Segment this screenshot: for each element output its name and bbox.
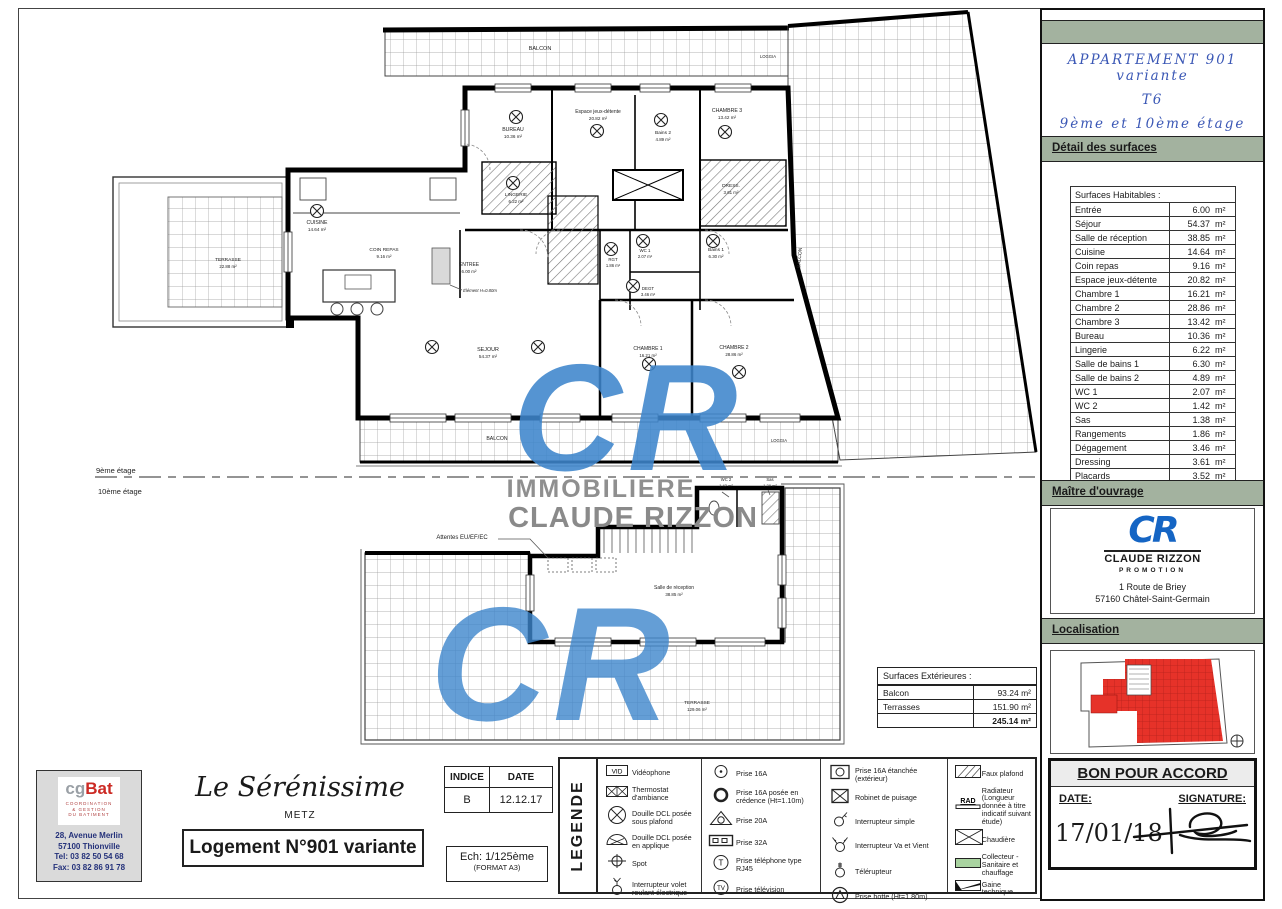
svg-text:Bains 2: Bains 2 <box>655 130 671 136</box>
outlet16-counter-icon <box>708 787 734 808</box>
balcon-top-label: BALCON <box>529 46 552 52</box>
terrace-9th <box>113 177 294 328</box>
svg-text:ENTREE: ENTREE <box>459 262 480 268</box>
gbat-box: cgBat COORDINATION& GESTIONDU BATIMENT 2… <box>36 770 142 882</box>
svg-text:T: T <box>719 859 724 868</box>
svg-text:LINGERIE: LINGERIE <box>505 192 527 198</box>
outlet20-icon <box>708 810 734 831</box>
shutter-switch-icon <box>604 877 630 901</box>
detail-surfaces-heading: Détail des surfaces <box>1042 137 1263 154</box>
loggia-top-label: LOGGIA <box>760 54 776 59</box>
svg-text:CUISINE: CUISINE <box>306 220 328 226</box>
svg-text:2.07 m²: 2.07 m² <box>638 254 653 259</box>
table-row: Dégagement3.46m² <box>1071 441 1236 455</box>
svg-text:RGT: RGT <box>608 257 618 262</box>
legend-item: Télérupteur <box>827 860 945 883</box>
spot-icon <box>604 853 630 874</box>
legend-item: Prise 16A étanchée (extérieur) <box>827 764 945 785</box>
legend-item: Interrupteur Va et Vient <box>827 835 945 858</box>
hab-table-header: Surfaces Habitables : <box>1071 187 1236 203</box>
balcon-bottom-label: BALCON <box>486 436 508 442</box>
svg-text:3.46 m²: 3.46 m² <box>641 292 656 297</box>
table-row: Rangements1.86m² <box>1071 427 1236 441</box>
bon-pour-accord-box: BON POUR ACCORD DATE: SIGNATURE: 17/01/1… <box>1048 758 1257 870</box>
legend-item: Prise 20A <box>708 810 818 831</box>
legend-item: T Prise téléphone type RJ45 <box>708 854 818 876</box>
legend: LEGENDE VID Vidéophone Thermostat d'ambi… <box>558 757 1037 894</box>
maitre-ouvrage-box: CR CLAUDE RIZZON PROMOTION 1 Route de Br… <box>1050 508 1255 614</box>
watermark-cr-bottom: CR <box>430 574 676 755</box>
svg-text:10.36 m²: 10.36 m² <box>504 134 523 139</box>
svg-text:DEGT: DEGT <box>642 286 655 291</box>
legend-item: Interrupteur volet roulant électrique <box>604 877 699 901</box>
table-row: WC 12.07m² <box>1071 385 1236 399</box>
logement-box: Logement N°901 variante <box>182 829 424 867</box>
table-row: Dressing3.61m² <box>1071 455 1236 469</box>
top-band <box>1042 20 1263 44</box>
svg-text:13.42 m²: 13.42 m² <box>718 115 737 120</box>
svg-text:WC 1: WC 1 <box>640 248 652 253</box>
table-row: Terrasses151.90 m² <box>878 700 1036 714</box>
table-row: Lingerie6.22m² <box>1071 343 1236 357</box>
floor10-label: 10ème étage <box>98 487 142 496</box>
date-label: DATE: <box>1059 793 1092 805</box>
table-row: WC 21.42m² <box>1071 399 1236 413</box>
collector-icon <box>954 856 980 874</box>
videophone-icon: VID <box>604 764 630 782</box>
legend-item: Prise 32A <box>708 834 818 852</box>
legend-item: VID Vidéophone <box>604 764 699 782</box>
project-name: Le Sérénissime <box>175 772 425 803</box>
project-city: METZ <box>175 810 425 821</box>
phone-outlet-icon: T <box>708 854 734 876</box>
legend-item: TV Prise télévision <box>708 879 818 901</box>
legend-item: Douille DCL posée en applique <box>604 833 699 851</box>
legend-item: Chaudière <box>954 828 1033 851</box>
switch-two-way-icon <box>827 835 853 858</box>
ext-total-row: 245.14 m² <box>878 714 1036 728</box>
table-row: Salle de bains 16.30m² <box>1071 357 1236 371</box>
svg-text:TERRASSE: TERRASSE <box>684 700 710 706</box>
svg-text:1.86 m²: 1.86 m² <box>606 263 621 268</box>
gbat-logo: cgBat COORDINATION& GESTIONDU BATIMENT <box>58 777 120 825</box>
switch-simple-icon <box>827 811 853 832</box>
localisation-band: Localisation <box>1042 618 1263 644</box>
localisation-map <box>1050 650 1255 754</box>
outlet16-icon <box>708 764 734 784</box>
svg-text:54.37 m²: 54.37 m² <box>479 354 498 359</box>
gaine-technique-box <box>613 170 683 200</box>
bon-pour-accord-heading: BON POUR ACCORD <box>1051 761 1254 787</box>
company-address: 1 Route de Briey 57160 Châtel-Saint-Germ… <box>1051 581 1254 605</box>
svg-text:4.89 m²: 4.89 m² <box>656 137 671 142</box>
outlet32-icon <box>708 834 734 852</box>
exterior-surfaces-table: Surfaces Extérieures : Balcon93.24 m² Te… <box>877 667 1037 728</box>
legend-item: Prise 16A <box>708 764 818 784</box>
scale-box: Ech: 1/125ème (FORMAT A3) <box>446 846 548 882</box>
maitre-ouvrage-heading: Maître d'ouvrage <box>1042 481 1263 498</box>
company-name: CLAUDE RIZZON <box>1104 550 1200 565</box>
outlet16-waterproof-icon <box>827 764 853 785</box>
legend-item: Douille DCL posée sous plafond <box>604 805 699 830</box>
thermostat-icon <box>604 785 630 803</box>
watermark-line1: IMMOBILIERE <box>507 475 696 503</box>
false-ceiling-icon <box>954 764 980 784</box>
svg-text:Sas: Sas <box>766 477 773 482</box>
watermark-line2: CLAUDE RIZZON <box>508 502 758 534</box>
boiler-icon <box>954 828 980 851</box>
hood-outlet-icon <box>827 886 853 909</box>
svg-text:SEJOUR: SEJOUR <box>477 347 499 353</box>
technical-duct-icon <box>954 879 980 897</box>
element-label: Élément H=0.80m <box>463 288 497 293</box>
table-row: Coin repas9.16m² <box>1071 259 1236 273</box>
legend-item: Faux plafond <box>954 764 1033 784</box>
svg-text:Bains 1: Bains 1 <box>708 247 724 253</box>
table-row: Salle de réception38.85m² <box>1071 231 1236 245</box>
loggia-bottom-label: LOGGIA <box>771 438 787 443</box>
svg-text:VID: VID <box>612 769 623 776</box>
legend-item: RAD Radiateur (Longueur donnée à titre i… <box>954 787 1033 826</box>
signature <box>1132 805 1252 860</box>
svg-text:129.06 m²: 129.06 m² <box>687 707 707 712</box>
table-row: Séjour54.37m² <box>1071 217 1236 231</box>
svg-text:20.82 m²: 20.82 m² <box>589 116 608 121</box>
legend-item: Thermostat d'ambiance <box>604 785 699 803</box>
indice-table: INDICEDATE B12.12.17 <box>444 766 553 813</box>
table-row: Chambre 116.21m² <box>1071 287 1236 301</box>
dcl-ceiling-icon <box>604 805 630 830</box>
habitable-surfaces-table: Surfaces Habitables : Entrée6.00m² Séjou… <box>1070 186 1236 497</box>
signature-label: SIGNATURE: <box>1178 793 1246 805</box>
svg-text:6.30 m²: 6.30 m² <box>709 254 724 259</box>
gbat-address: 28, Avenue Merlin 57100 Thionville Tel: … <box>37 831 141 873</box>
legend-item: Robinet de puisage <box>827 788 945 809</box>
svg-text:1.38 m²: 1.38 m² <box>763 483 777 488</box>
table-row: Chambre 228.86m² <box>1071 301 1236 315</box>
svg-text:RAD: RAD <box>960 798 975 805</box>
legend-title: LEGENDE <box>560 759 598 892</box>
floor9-label: 9ème étage <box>96 466 136 475</box>
svg-text:14.64 m²: 14.64 m² <box>308 227 327 232</box>
legend-item: Collecteur - Sanitaire et chauffage <box>954 853 1033 876</box>
localisation-map-drawing <box>1051 651 1252 751</box>
legend-item: Prise 16A posée en crédence (Ht=1.10m) <box>708 787 818 808</box>
tv-outlet-icon: TV <box>708 879 734 901</box>
localisation-heading: Localisation <box>1042 619 1263 636</box>
legend-item: Interrupteur simple <box>827 811 945 832</box>
balcony-top <box>383 28 789 76</box>
table-row: Bureau10.36m² <box>1071 329 1236 343</box>
svg-text:3.61 m²: 3.61 m² <box>724 190 739 195</box>
water-tap-icon <box>827 788 853 809</box>
legend-item: Spot <box>604 853 699 874</box>
table-row: Sas1.38m² <box>1071 413 1236 427</box>
svg-text:Espace jeux-détente: Espace jeux-détente <box>575 109 621 115</box>
legend-item: Prise hotte (Ht=1.80m) <box>827 886 945 909</box>
detail-surfaces-band: Détail des surfaces <box>1042 136 1263 162</box>
cr-logo: CR <box>1051 513 1254 549</box>
radiator-icon: RAD <box>954 795 980 816</box>
table-row: Espace jeux-détente20.82m² <box>1071 273 1236 287</box>
attentes-label: Attentes EU/EF/EC <box>436 535 488 541</box>
remote-switch-icon <box>827 860 853 883</box>
dcl-wall-icon <box>604 833 630 851</box>
table-row: Entrée6.00m² <box>1071 203 1236 217</box>
svg-text:DRESS.: DRESS. <box>722 183 740 189</box>
svg-text:22.88 m²: 22.88 m² <box>219 264 237 269</box>
right-panel: APPARTEMENT 901 variante T6 9ème et 10èm… <box>1040 8 1265 901</box>
svg-text:TERRASSE: TERRASSE <box>215 257 241 263</box>
table-row: Balcon93.24 m² <box>878 686 1036 700</box>
svg-text:TV: TV <box>717 886 725 892</box>
maitre-ouvrage-band: Maître d'ouvrage <box>1042 480 1263 506</box>
table-row: Salle de bains 24.89m² <box>1071 371 1236 385</box>
table-row: Chambre 313.42m² <box>1071 315 1236 329</box>
svg-text:6.22 m²: 6.22 m² <box>509 199 524 204</box>
svg-text:9.16 m²: 9.16 m² <box>377 254 392 259</box>
legend-item: Gaine technique <box>954 879 1033 897</box>
company-subtitle: PROMOTION <box>1051 567 1254 574</box>
table-row: Cuisine14.64m² <box>1071 245 1236 259</box>
svg-text:6.00 m²: 6.00 m² <box>462 269 477 274</box>
gbat-subtitle: COORDINATION& GESTIONDU BATIMENT <box>58 801 120 818</box>
svg-text:CHAMBRE 3: CHAMBRE 3 <box>712 108 742 114</box>
ext-table-header: Surfaces Extérieures : <box>878 668 1036 685</box>
svg-text:COIN REPAS: COIN REPAS <box>369 247 398 253</box>
svg-text:BUREAU: BUREAU <box>502 127 524 133</box>
apartment-title: APPARTEMENT 901 variante T6 9ème et 10èm… <box>1042 44 1263 132</box>
